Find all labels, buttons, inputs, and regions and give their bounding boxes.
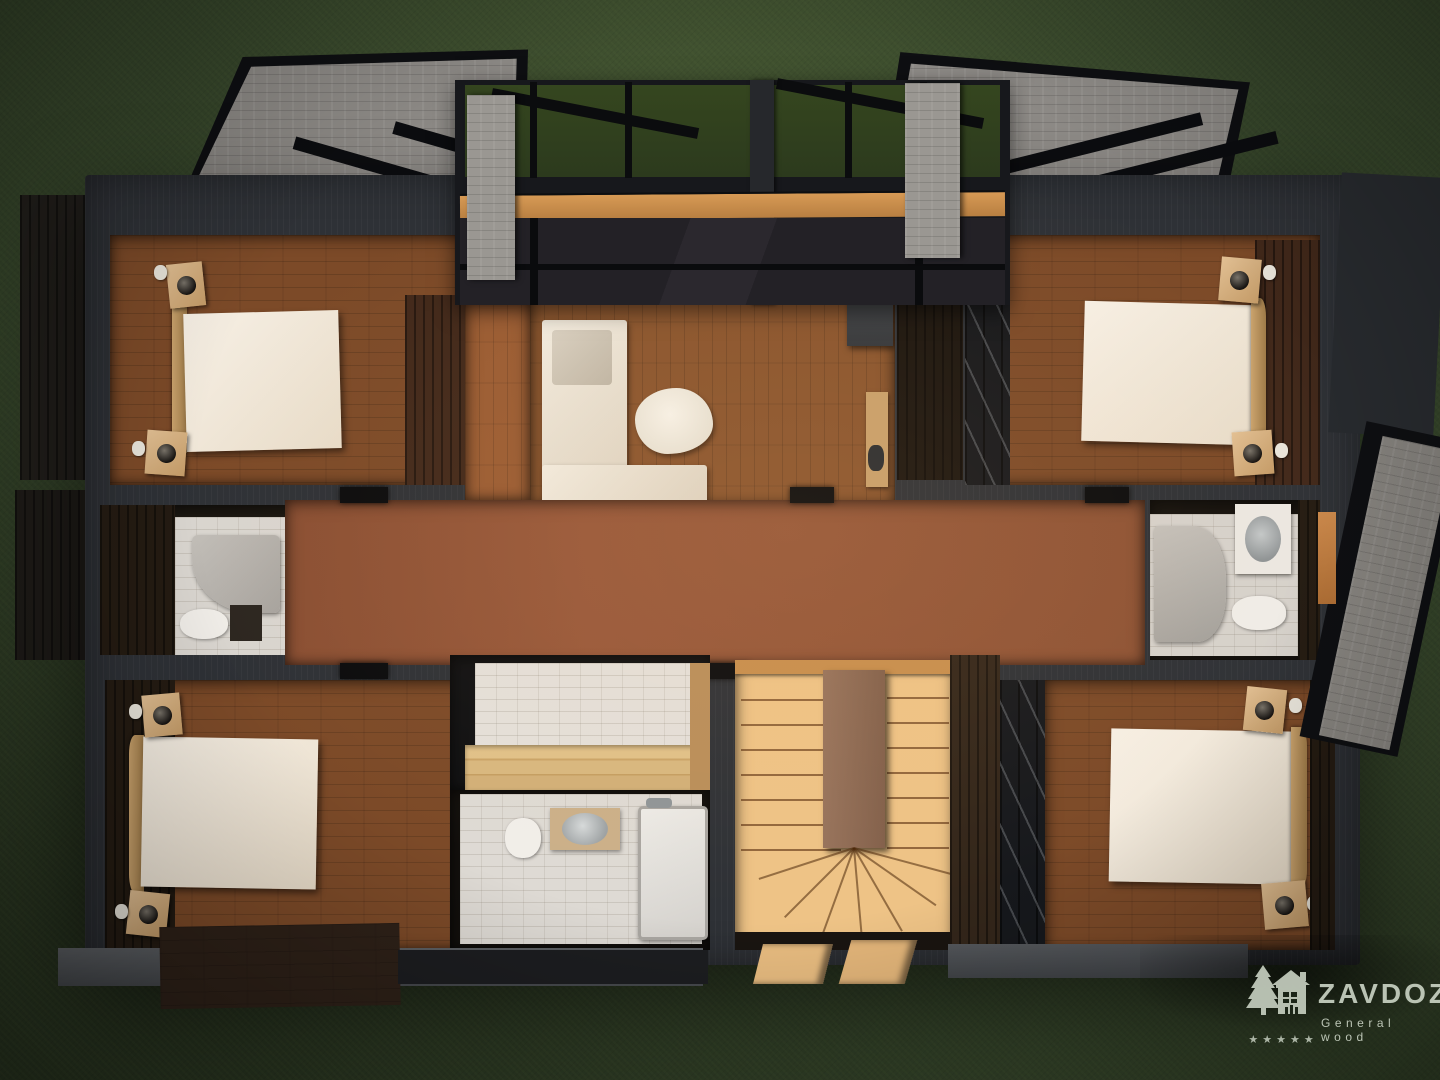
decor-vase [129, 704, 142, 719]
balcony-mullion [625, 82, 632, 178]
table-lamp [1274, 895, 1295, 916]
bath-floor-dark [100, 505, 175, 655]
fur-rug [635, 388, 713, 454]
toilet [180, 609, 228, 639]
shower-tray [638, 806, 708, 940]
balcony-mullion [530, 82, 537, 178]
render-scene: ★★★★★ ZAVDOZ General wood [0, 0, 1440, 1080]
room-bedroom-bottom-right [1045, 680, 1335, 950]
nightstand [145, 430, 188, 477]
decor-vase [154, 265, 167, 280]
stair-winder [735, 848, 955, 932]
console-decor [868, 445, 884, 471]
double-bed [1109, 728, 1295, 884]
window-sill-right [1318, 512, 1336, 604]
table-lamp [1229, 270, 1250, 291]
star-icon: ★ [1276, 1034, 1286, 1046]
star-icon: ★ [1304, 1034, 1314, 1046]
nightstand [1232, 430, 1275, 477]
decor-vase [1263, 265, 1276, 280]
sauna-wood-post [690, 663, 710, 790]
floor-shadow-strip [405, 295, 465, 485]
door-opening [790, 487, 834, 503]
bath-floor-dark [1298, 500, 1320, 660]
room-bedroom-top-right [965, 235, 1320, 485]
sofa-cushions [552, 330, 612, 385]
nightstand [166, 261, 206, 309]
double-bed [141, 736, 319, 889]
room-staircase [735, 660, 955, 950]
stair-newel-column [823, 670, 885, 848]
shower-fittings [646, 798, 672, 808]
double-bed [1081, 301, 1255, 445]
washbasin-vanity [1235, 504, 1291, 574]
table-lamp [1254, 700, 1275, 721]
decor-vase [115, 904, 128, 919]
balcony-structure [455, 80, 1010, 305]
fence-left-upper [20, 195, 95, 480]
table-lamp [156, 443, 176, 463]
room-hallway [285, 500, 1145, 665]
bed-headboard [1251, 298, 1266, 450]
shower-enclosure [1154, 526, 1226, 642]
star-icon: ★ [1262, 1034, 1272, 1046]
room-bathroom-right [1150, 500, 1320, 660]
nightstand [1218, 256, 1262, 303]
room-sauna [450, 655, 710, 790]
decor-vase [132, 441, 145, 456]
watermark-brand: ZAVDOZ [1318, 978, 1440, 1010]
deck-boards-bottom-left [159, 923, 400, 1009]
console-table [866, 392, 888, 487]
glass-mullion [530, 218, 538, 305]
nightstand [1243, 686, 1287, 734]
under-stair-step [839, 940, 918, 984]
washbasin-bowl [1245, 516, 1281, 562]
bed-headboard [1291, 727, 1307, 889]
sauna-tile-wall [475, 663, 690, 745]
room-living-area [530, 280, 895, 505]
door-opening [340, 487, 388, 503]
decor-vase [1275, 443, 1288, 458]
table-lamp [152, 705, 173, 726]
table-lamp [1242, 443, 1262, 463]
washbasin-bowl [562, 813, 608, 845]
fence-left-lower [15, 490, 95, 660]
table-lamp [176, 275, 197, 296]
double-bed [183, 310, 342, 452]
nightstand [141, 692, 183, 737]
stone-pier-right [905, 83, 960, 258]
watermark-tagline: General wood [1321, 1016, 1438, 1044]
glass-wall-bedroom [1000, 680, 1045, 950]
star-icon: ★ [1290, 1034, 1300, 1046]
sauna-bench [465, 745, 695, 790]
watermark-star-row: ★★★★★ [1238, 1030, 1324, 1048]
corner-sofa-short [542, 465, 707, 505]
stone-pier-left [467, 95, 515, 280]
toilet [1232, 596, 1286, 630]
washbasin-counter [550, 808, 620, 850]
winder-step-edge [853, 847, 936, 906]
beam-strip-bottom [398, 950, 708, 984]
table-lamp [138, 904, 159, 925]
logo-tree-house-icon [1244, 960, 1310, 1028]
wall-chunk-right [1328, 172, 1440, 437]
glass-partition-living-right [897, 280, 963, 480]
under-stair-step [753, 944, 833, 984]
watermark: ★★★★★ ZAVDOZ General wood [1238, 958, 1438, 1073]
vanity-cabinet [230, 605, 262, 641]
room-bathroom-center [450, 790, 710, 950]
door-opening [340, 663, 388, 679]
stair-flight-right [887, 674, 949, 852]
balcony-mullion [845, 82, 852, 178]
decor-vase [1289, 698, 1302, 713]
glass-mullion-horizontal [460, 264, 1005, 270]
nightstand [1261, 880, 1309, 930]
room-bathroom-left [100, 505, 305, 655]
room-bedroom-top-left [110, 235, 465, 485]
stair-slatted-screen [950, 655, 1000, 945]
corridor-top-left [465, 300, 530, 500]
room-bedroom-bottom-left [105, 680, 470, 950]
toilet [505, 818, 541, 858]
door-opening [1085, 487, 1129, 503]
star-icon: ★ [1248, 1034, 1258, 1046]
